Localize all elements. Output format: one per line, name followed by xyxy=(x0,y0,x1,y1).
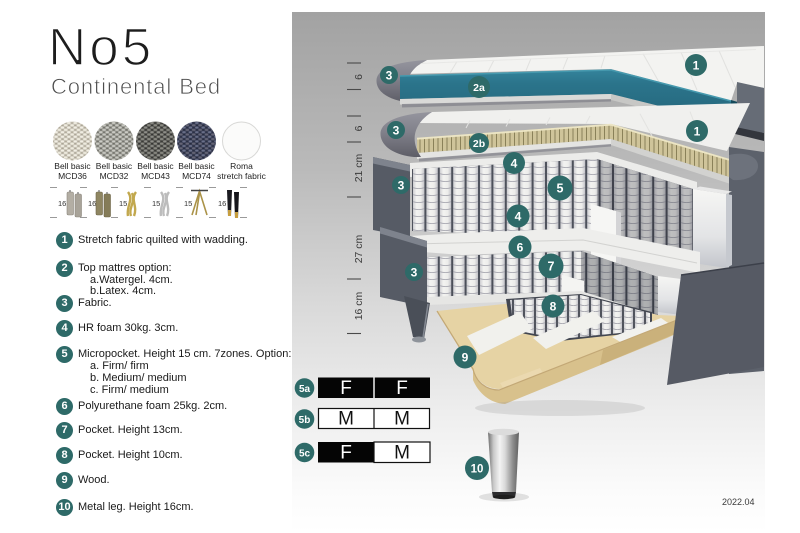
svg-text:6: 6 xyxy=(353,74,365,80)
svg-text:15: 15 xyxy=(152,199,160,208)
svg-text:16: 16 xyxy=(88,199,96,208)
svg-text:15: 15 xyxy=(184,199,192,208)
svg-text:5b: 5b xyxy=(299,415,311,426)
svg-text:2a: 2a xyxy=(473,82,485,94)
svg-text:F: F xyxy=(340,443,352,464)
svg-text:10: 10 xyxy=(471,464,484,476)
svg-text:3: 3 xyxy=(386,69,393,83)
svg-text:2022.04: 2022.04 xyxy=(722,497,755,507)
svg-text:M: M xyxy=(338,409,354,430)
svg-text:M: M xyxy=(394,409,410,430)
svg-text:9: 9 xyxy=(462,351,469,365)
svg-text:1: 1 xyxy=(694,125,701,139)
svg-text:21 cm: 21 cm xyxy=(353,153,365,182)
svg-text:16 cm: 16 cm xyxy=(353,291,365,320)
svg-text:1: 1 xyxy=(693,59,700,73)
svg-text:MCD36: MCD36 xyxy=(58,171,87,181)
svg-text:16: 16 xyxy=(58,199,66,208)
svg-text:5c: 5c xyxy=(299,448,311,459)
svg-text:Bell basic: Bell basic xyxy=(54,161,91,171)
svg-text:3: 3 xyxy=(411,266,418,280)
svg-text:F: F xyxy=(340,378,352,399)
svg-text:2b: 2b xyxy=(473,138,485,150)
svg-text:8: 8 xyxy=(550,300,557,314)
svg-text:5: 5 xyxy=(557,182,564,196)
svg-text:MCD32: MCD32 xyxy=(100,171,129,181)
svg-text:stretch fabric: stretch fabric xyxy=(217,171,266,181)
svg-text:27 cm: 27 cm xyxy=(353,234,365,263)
svg-text:MCD74: MCD74 xyxy=(182,171,211,181)
svg-text:15: 15 xyxy=(119,199,127,208)
svg-text:6: 6 xyxy=(517,241,524,255)
svg-text:3: 3 xyxy=(398,179,405,193)
svg-text:6: 6 xyxy=(353,125,365,131)
svg-text:MCD43: MCD43 xyxy=(141,171,170,181)
svg-text:Roma: Roma xyxy=(230,161,253,171)
svg-text:M: M xyxy=(394,443,410,464)
svg-text:3: 3 xyxy=(393,124,400,138)
svg-text:16: 16 xyxy=(218,199,226,208)
svg-text:4: 4 xyxy=(511,157,518,171)
svg-text:Bell basic: Bell basic xyxy=(178,161,215,171)
svg-text:4: 4 xyxy=(515,210,522,224)
svg-text:F: F xyxy=(396,378,408,399)
svg-text:7: 7 xyxy=(548,260,555,274)
svg-text:5a: 5a xyxy=(299,384,311,395)
svg-text:Bell basic: Bell basic xyxy=(137,161,174,171)
svg-text:Bell basic: Bell basic xyxy=(96,161,133,171)
